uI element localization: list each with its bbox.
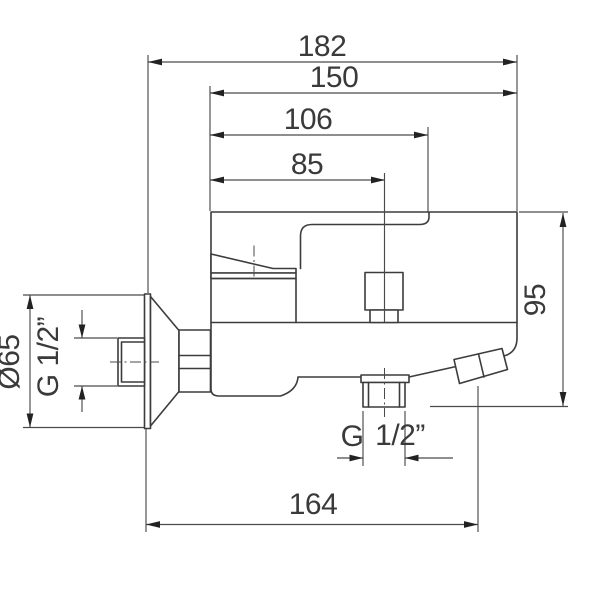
escutcheon-plate [145, 294, 151, 429]
arrowhead [210, 177, 224, 184]
technical-drawing-canvas: 182 150 106 85 95 164 Ø65 [0, 0, 600, 600]
dim-label-95: 95 [519, 284, 552, 316]
dimension-height: 95 [519, 213, 566, 406]
arrowhead [79, 325, 86, 339]
arrowhead [210, 90, 224, 97]
arrowhead [405, 455, 419, 462]
dimension-wall-thread: G 1/2” [32, 310, 85, 412]
dimension-deck-width: 150 [210, 61, 517, 96]
arrowhead [560, 213, 567, 227]
arrowhead [414, 132, 428, 139]
connection-nut [179, 330, 211, 392]
arrowhead [503, 59, 517, 66]
arrowhead [210, 132, 224, 139]
dimension-shower-outlet-offset: 85 [210, 148, 385, 183]
bath-mixer-dimension-drawing: 182 150 106 85 95 164 Ø65 [0, 0, 600, 600]
dimension-lever-reach: 106 [210, 103, 428, 138]
dimension-bottom-outlet-thread: G 1/2” [337, 419, 453, 461]
dim-label-wall-thread: G 1/2” [32, 317, 65, 397]
arrowhead [371, 177, 385, 184]
dim-label-bottom-thread-g: G [341, 420, 364, 453]
dim-label-106: 106 [284, 103, 333, 136]
arrowhead [350, 455, 364, 462]
arrowhead [27, 295, 34, 309]
dim-label-164: 164 [289, 488, 338, 521]
arrowhead [464, 521, 478, 528]
dimension-wall-to-spout-outlet: 164 [146, 488, 478, 528]
dim-label-150: 150 [310, 61, 359, 94]
faucet-geometry [118, 212, 517, 429]
dim-label-85: 85 [291, 148, 323, 181]
arrowhead [27, 414, 34, 428]
arrowhead [560, 392, 567, 406]
escutcheon-cone [151, 297, 180, 427]
dimension-flange-diameter: Ø65 [0, 295, 33, 428]
arrowhead [148, 59, 162, 66]
dim-label-182: 182 [298, 30, 347, 63]
arrowhead [503, 90, 517, 97]
arrowhead [146, 521, 160, 528]
dim-label-diameter-65: Ø65 [0, 334, 26, 389]
dim-label-bottom-thread-size: 1/2” [375, 419, 425, 452]
arrowhead [79, 386, 86, 400]
